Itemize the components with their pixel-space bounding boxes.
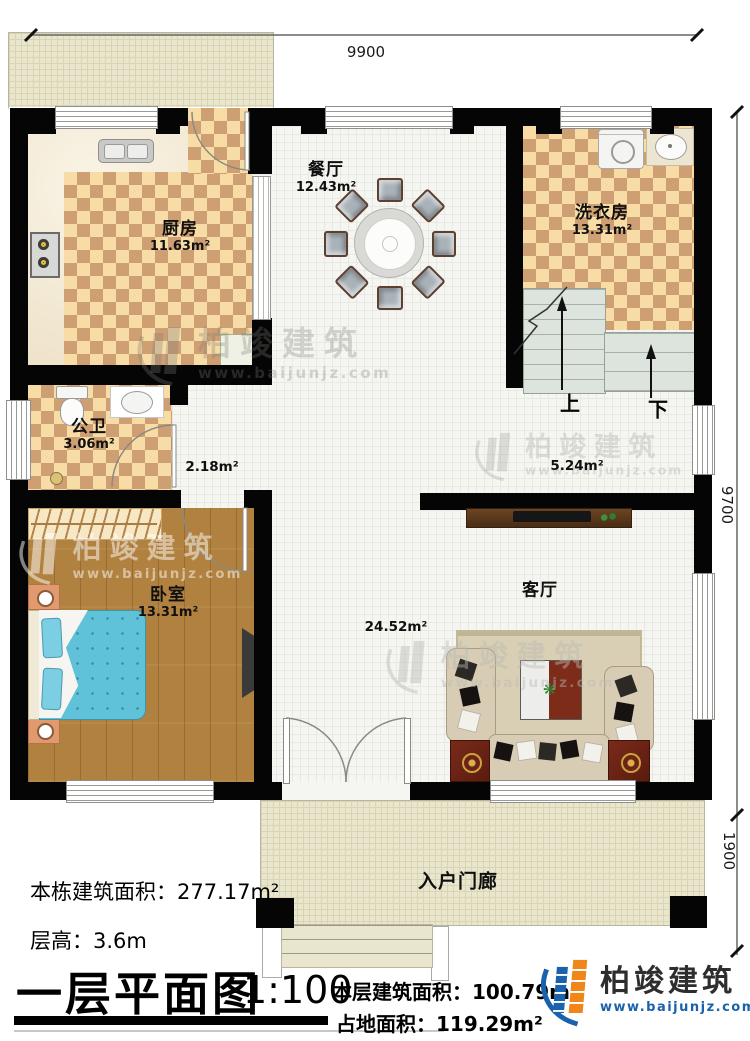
value: 119.29m² <box>436 1012 543 1036</box>
hall-area-label: 2.18m² <box>185 459 238 475</box>
wall-kitchen-door-side <box>248 108 272 174</box>
stove <box>30 232 60 278</box>
label: 本栋建筑面积： <box>30 880 177 904</box>
sink-basin <box>104 144 125 159</box>
window-stair-right <box>692 405 715 475</box>
wall-laundry-left <box>506 126 523 388</box>
value: 277.17m² <box>177 880 279 904</box>
room-label-bathroom: 公卫 3.06m² <box>63 412 114 452</box>
nightstand <box>28 584 60 610</box>
label: 占地面积： <box>336 1012 436 1036</box>
coffee-table: ❋ <box>520 660 582 720</box>
room-name: 卧室 <box>138 580 198 605</box>
brand-name: 柏竣建筑 <box>600 967 750 997</box>
floor-drain <box>50 472 63 485</box>
dimension-right-porch-label: 1900 <box>720 832 738 870</box>
room-area: 13.31m² <box>138 605 198 620</box>
pillow <box>41 618 63 659</box>
bed <box>28 610 144 718</box>
sofa <box>488 734 610 784</box>
room-name: 公卫 <box>63 412 114 437</box>
window-dining <box>325 106 453 129</box>
porch-area <box>260 800 705 926</box>
room-label-bedroom: 卧室 13.31m² <box>138 580 198 620</box>
window-living-bottom <box>490 780 636 803</box>
room-label-living-name: 客厅 <box>522 576 558 601</box>
tv <box>513 511 591 522</box>
stairs-up-label: 上 <box>560 388 580 417</box>
window-living-right <box>692 573 715 720</box>
window-bedroom <box>66 780 214 803</box>
sink-basin <box>127 144 148 159</box>
dining-chair <box>324 231 348 257</box>
window-bathroom <box>6 400 31 480</box>
stairs-up-flight <box>523 288 606 394</box>
wall-bedroom-top-b <box>244 490 272 508</box>
floor-height: 层高：3.6m <box>30 925 147 955</box>
room-name: 餐厅 <box>296 155 356 180</box>
land-area: 占地面积：119.29m² <box>336 1008 543 1037</box>
plant-decor <box>597 512 621 523</box>
table-plant: ❋ <box>543 682 559 698</box>
wall-bathroom-stub <box>170 385 188 405</box>
pier <box>156 126 180 134</box>
washing-machine <box>598 129 644 169</box>
wall-kitchen-dining-lower <box>252 318 272 365</box>
kitchen-doorway-floor <box>188 108 248 174</box>
page-title: 一层平面图 <box>16 958 261 1024</box>
pier <box>650 126 674 134</box>
hall-area-label: 5.24m² <box>550 458 603 474</box>
room-name: 厨房 <box>150 214 210 239</box>
tv-cabinet <box>466 508 632 528</box>
building-total-area: 本栋建筑面积：277.17m² <box>30 876 279 906</box>
dining-chair <box>377 286 403 310</box>
dining-chair <box>432 231 456 257</box>
entrance-door-leaf <box>404 718 411 784</box>
value: 3.6m <box>93 929 147 953</box>
porch-step-rail-right <box>431 926 449 981</box>
wall-bedroom-right <box>254 508 272 782</box>
armchair-left <box>446 648 496 742</box>
wardrobe <box>28 508 162 540</box>
pier <box>450 126 474 134</box>
room-area: 3.06m² <box>63 437 114 452</box>
title-underline <box>14 1016 328 1025</box>
wall-bedroom-top-a <box>10 490 181 508</box>
label: 层高： <box>30 929 93 953</box>
pier <box>301 126 327 134</box>
entrance-opening <box>282 782 410 800</box>
floor-plan: ❋ 厨房 11.6 <box>0 0 750 1041</box>
burner <box>38 257 49 268</box>
room-name: 入户门廊 <box>418 867 498 894</box>
label: 本层建筑面积： <box>332 980 472 1004</box>
burner <box>38 239 49 250</box>
terrace-area <box>8 32 274 110</box>
room-label-dining: 餐厅 12.43m² <box>296 155 356 195</box>
side-table <box>450 740 490 782</box>
dimension-right-main-label: 9700 <box>718 486 736 524</box>
kitchen-pass-through <box>252 176 271 320</box>
bathroom-sink <box>110 386 164 418</box>
dining-chair <box>377 178 403 202</box>
kitchen-sink <box>98 139 154 163</box>
brand-url: www.baijunjz.com <box>600 1001 750 1014</box>
room-label-kitchen: 厨房 11.63m² <box>150 214 210 254</box>
dimension-top-label: 9900 <box>347 43 385 61</box>
pier <box>536 126 562 134</box>
brand-building-icon <box>540 958 592 1022</box>
window-kitchen <box>55 106 158 129</box>
room-area: 12.43m² <box>296 180 356 195</box>
room-name: 客厅 <box>522 576 558 601</box>
side-table <box>608 740 650 782</box>
pillow <box>41 668 63 711</box>
room-name: 洗衣房 <box>572 198 632 223</box>
wall-kitchen-bottom <box>10 365 272 385</box>
stairs-landing <box>604 332 696 392</box>
room-label-porch: 入户门廊 <box>418 867 498 894</box>
stairs-down-label: 下 <box>648 394 668 423</box>
room-label-living-area: 24.52m² <box>365 619 428 635</box>
brand-logo: 柏竣建筑 www.baijunjz.com <box>540 958 750 1022</box>
room-area: 11.63m² <box>150 239 210 254</box>
window-laundry <box>560 106 652 129</box>
nightstand <box>28 716 60 744</box>
dining-table <box>354 208 424 278</box>
pier <box>28 126 56 134</box>
porch-steps <box>281 924 433 968</box>
room-area: 13.31m² <box>572 223 632 238</box>
porch-pillar-right <box>670 896 707 928</box>
room-label-laundry: 洗衣房 13.31m² <box>572 198 632 238</box>
entrance-door-leaf <box>283 718 290 784</box>
